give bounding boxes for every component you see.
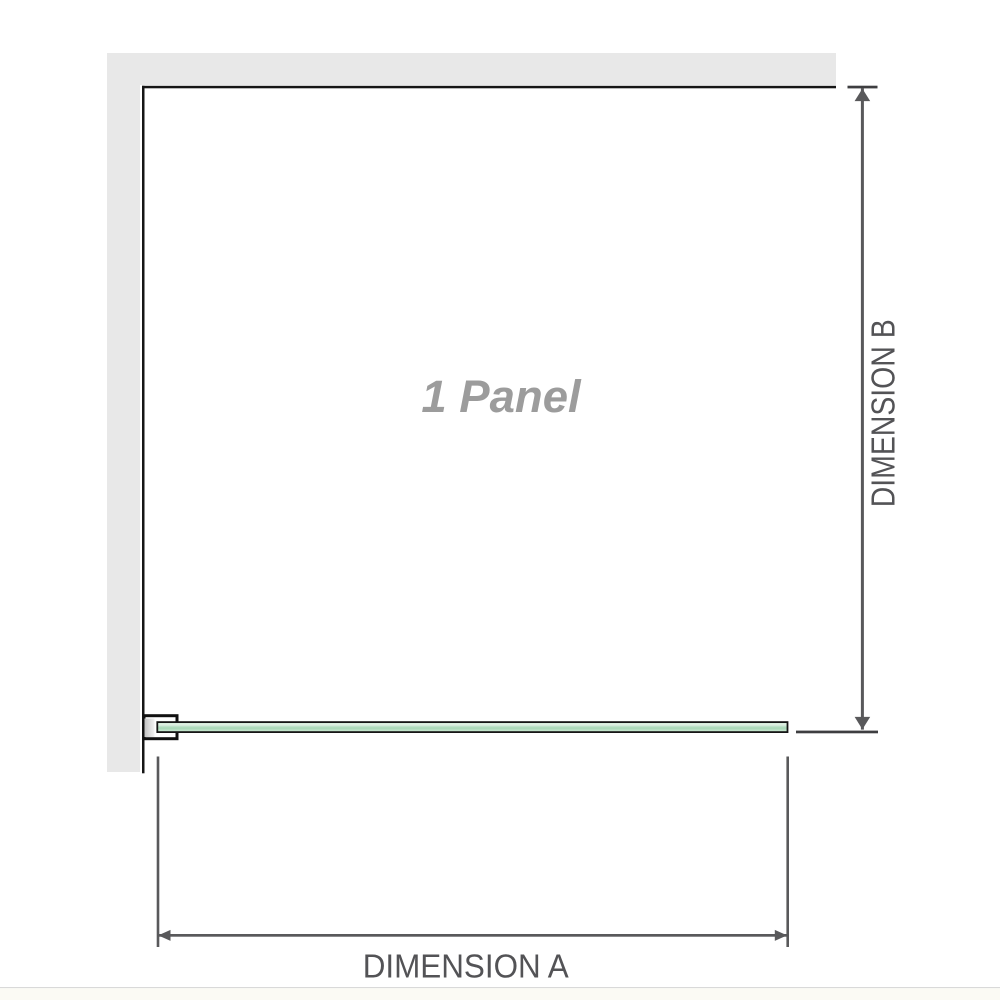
- svg-text:1 Panel: 1 Panel: [421, 371, 582, 422]
- svg-text:DIMENSION B: DIMENSION B: [865, 319, 902, 507]
- svg-text:DIMENSION A: DIMENSION A: [363, 948, 569, 985]
